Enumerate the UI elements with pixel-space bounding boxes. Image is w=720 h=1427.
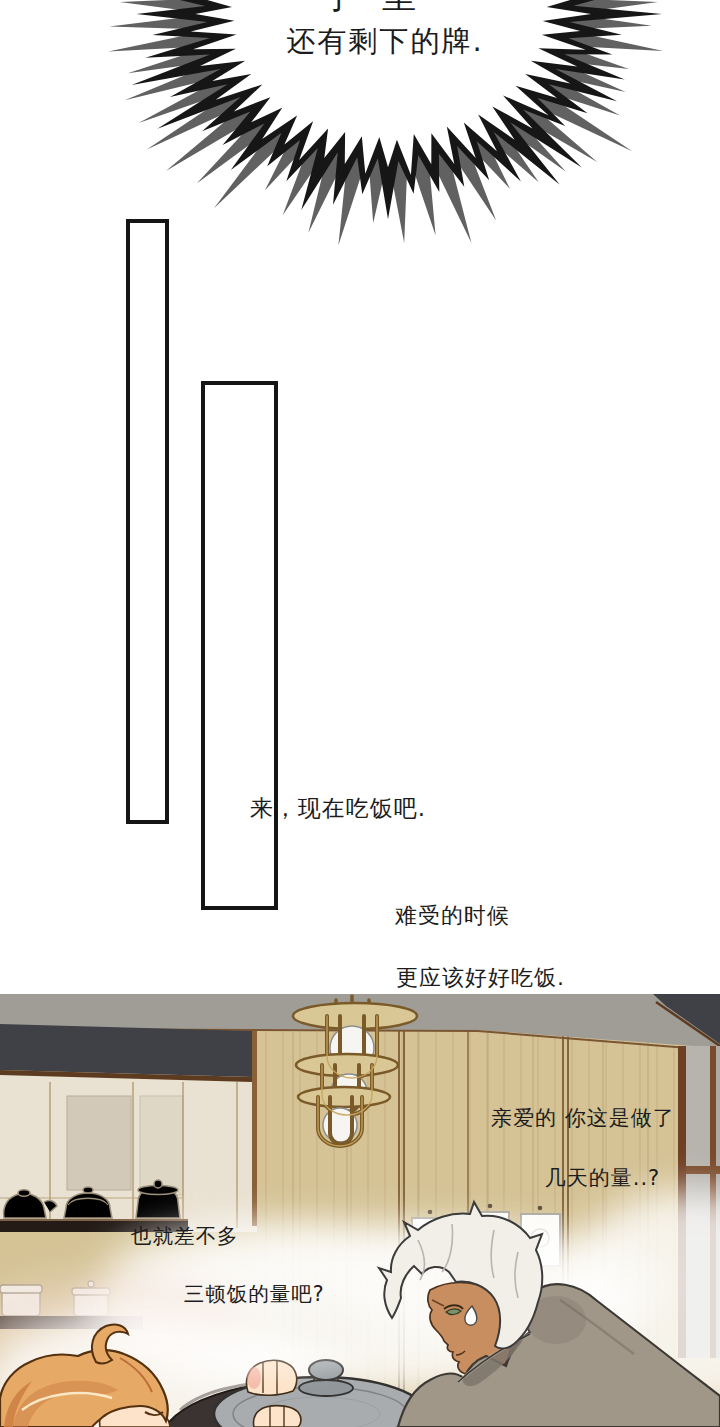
burst-text: 还有剩下的牌. [225,22,545,62]
steam-wisp [180,1340,360,1376]
bubble-three-meals-text: 也就差不多 三顿饭的量吧? [131,1222,301,1309]
range-hood [0,1024,252,1082]
empty-panel-left [126,219,169,824]
bubble-should-eat-well-text: 难受的时候 更应该好好吃饭. [330,900,575,993]
bubble-eat-now-text: 来，现在吃饭吧. [218,793,458,824]
empty-panel-right [201,381,278,910]
kitchen-panel [0,990,720,1427]
comic-page: 手里 还有剩下的牌. 来，现在吃饭吧. 难受的时候 更应该好好吃饭. 亲爱的 你… [0,0,720,1427]
burst-text-clipped: 手里 [292,0,472,20]
bubble-dear-text: 亲爱的 你这是做了 几天的量..? [491,1103,701,1193]
